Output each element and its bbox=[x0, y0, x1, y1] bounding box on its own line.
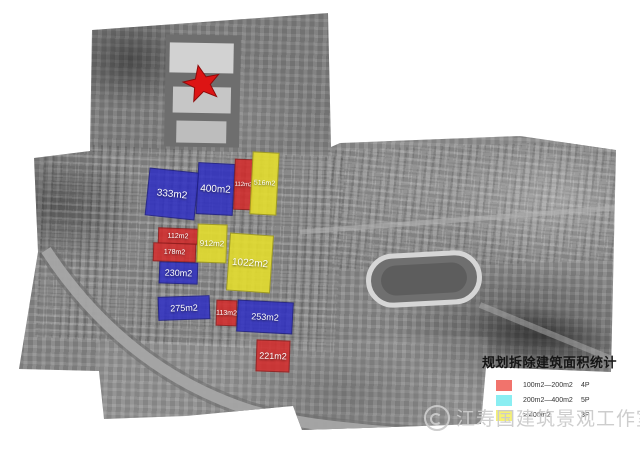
watermark-logo-icon bbox=[424, 405, 450, 431]
area-label: 253m2 bbox=[251, 311, 279, 322]
area-label: 221m2 bbox=[259, 351, 287, 362]
area-label: 912m2 bbox=[200, 239, 225, 249]
demolition-plan-map: 333m2400m2112m2516m2112m2178m2912m21022m… bbox=[0, 0, 640, 451]
area-label: 516m2 bbox=[254, 179, 276, 187]
watermark: 江寿国建筑景观工作室 bbox=[424, 404, 640, 431]
building-overlay: 113m2 bbox=[216, 300, 238, 327]
building-overlay: 516m2 bbox=[249, 151, 279, 215]
building-overlay: 1022m2 bbox=[226, 233, 274, 294]
building-overlay: 221m2 bbox=[255, 339, 290, 372]
legend-count-label: 5P bbox=[581, 397, 590, 404]
area-label: 333m2 bbox=[156, 187, 188, 201]
legend-count-label: 4P bbox=[581, 382, 590, 389]
legend-title: 规划拆除建筑面积统计 bbox=[482, 352, 634, 371]
legend-range-label: 200m2—400m2 bbox=[523, 397, 581, 404]
legend-swatch bbox=[496, 380, 512, 391]
red-star-marker-icon bbox=[178, 60, 226, 108]
building-overlay: 230m2 bbox=[159, 261, 199, 284]
area-label: 112m2 bbox=[167, 232, 188, 240]
legend-row: 100m2—200m24P bbox=[482, 378, 634, 393]
area-label: 230m2 bbox=[165, 268, 193, 279]
building-overlay: 333m2 bbox=[145, 168, 200, 221]
main-street bbox=[300, 208, 615, 232]
watermark-text: 江寿国建筑景观工作室 bbox=[456, 404, 640, 431]
building-overlay: 912m2 bbox=[196, 223, 227, 263]
area-label: 400m2 bbox=[200, 183, 231, 196]
area-label: 178m2 bbox=[164, 249, 186, 257]
area-label: 1022m2 bbox=[232, 256, 269, 269]
building-overlay: 178m2 bbox=[153, 242, 197, 262]
area-label: 275m2 bbox=[170, 303, 198, 314]
building-overlay: 400m2 bbox=[196, 162, 236, 216]
legend-range-label: 100m2—200m2 bbox=[523, 382, 581, 389]
building-overlay: 253m2 bbox=[236, 300, 294, 335]
building-overlay: 275m2 bbox=[158, 295, 211, 321]
area-label: 113m2 bbox=[216, 309, 237, 317]
